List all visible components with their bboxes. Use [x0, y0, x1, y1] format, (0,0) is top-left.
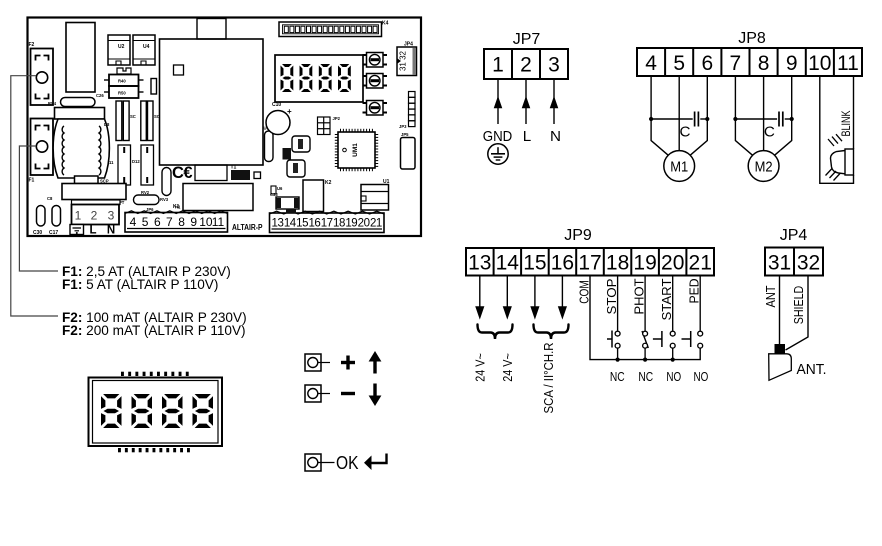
svg-text:F1: 5 AT (ALTAIR P 110V): F1: 5 AT (ALTAIR P 110V) [62, 277, 218, 292]
svg-text:16: 16 [551, 252, 574, 275]
svg-text:17: 17 [578, 252, 601, 275]
svg-text:JP4: JP4 [404, 42, 413, 48]
svg-text:24 V~: 24 V~ [473, 353, 487, 382]
svg-text:11: 11 [212, 215, 225, 229]
svg-text:JP4: JP4 [780, 227, 808, 244]
svg-text:SCA / II°CH.R: SCA / II°CH.R [542, 343, 556, 414]
svg-text:K4: K4 [382, 21, 389, 27]
svg-text:20: 20 [358, 218, 370, 230]
svg-text:C€: C€ [172, 164, 193, 182]
svg-text:T1: T1 [231, 165, 237, 171]
svg-text:15: 15 [523, 252, 546, 275]
svg-text:ANT.: ANT. [797, 361, 827, 378]
svg-text:PED: PED [687, 279, 701, 304]
svg-text:C10: C10 [272, 102, 281, 108]
svg-text:14: 14 [496, 252, 520, 275]
svg-text:11: 11 [837, 52, 859, 75]
svg-text:L: L [89, 225, 96, 237]
svg-text:RV4: RV4 [48, 101, 57, 106]
svg-text:2: 2 [520, 54, 532, 77]
svg-text:SC: SC [154, 114, 160, 119]
svg-text:F2: F2 [29, 42, 35, 48]
svg-text:NO: NO [666, 369, 681, 384]
svg-text:C: C [764, 124, 775, 141]
svg-text:17: 17 [321, 218, 333, 230]
svg-text:R40: R40 [118, 79, 126, 84]
svg-text:JP3: JP3 [399, 124, 407, 129]
svg-text:F1: F1 [29, 178, 35, 184]
svg-text:31: 31 [768, 252, 791, 275]
svg-text:C17: C17 [49, 230, 58, 236]
svg-text:13: 13 [272, 218, 284, 230]
svg-text:C30: C30 [33, 230, 42, 236]
svg-text:21: 21 [370, 218, 382, 230]
svg-text:JP8: JP8 [738, 30, 766, 47]
svg-text:+: + [287, 107, 292, 116]
svg-text:H1: H1 [175, 205, 181, 210]
svg-text:OK: OK [336, 452, 359, 473]
svg-text:2: 2 [91, 209, 98, 223]
svg-text:M2: M2 [755, 159, 773, 176]
svg-text:31 32: 31 32 [399, 50, 408, 71]
svg-text:UM1: UM1 [352, 143, 359, 157]
svg-text:8: 8 [758, 52, 770, 75]
svg-text:STOP: STOP [605, 279, 619, 315]
svg-text:GND: GND [483, 128, 513, 145]
svg-text:9: 9 [190, 215, 197, 229]
svg-text:1: 1 [75, 209, 82, 223]
svg-text:19: 19 [345, 218, 357, 230]
svg-text:BLINK: BLINK [841, 110, 853, 136]
svg-text:ANT: ANT [764, 285, 778, 307]
svg-text:4: 4 [645, 52, 657, 75]
svg-text:NC: NC [610, 369, 625, 384]
svg-text:N: N [107, 225, 115, 237]
svg-text:15: 15 [296, 218, 308, 230]
svg-text:SHIELD: SHIELD [792, 286, 806, 325]
svg-text:JP6: JP6 [146, 207, 154, 212]
svg-text:SC: SC [130, 114, 136, 119]
svg-text:RV3: RV3 [160, 197, 169, 202]
svg-text:D8: D8 [104, 122, 110, 127]
svg-text:20: 20 [661, 252, 684, 275]
svg-text:C8: C8 [47, 196, 53, 201]
svg-text:21: 21 [689, 252, 712, 275]
svg-text:N: N [550, 128, 561, 145]
svg-text:JP2: JP2 [333, 116, 341, 121]
svg-text:C26: C26 [96, 93, 104, 98]
svg-text:7: 7 [730, 52, 742, 75]
svg-text:U1: U1 [383, 179, 390, 185]
svg-text:19: 19 [633, 252, 656, 275]
svg-text:U2: U2 [118, 44, 125, 50]
svg-text:PHOT: PHOT [632, 278, 646, 314]
svg-text:32: 32 [797, 252, 820, 275]
svg-text:16: 16 [308, 218, 320, 230]
svg-text:6: 6 [701, 52, 713, 75]
svg-text:JP7: JP7 [513, 31, 541, 48]
svg-text:13: 13 [468, 252, 491, 275]
svg-text:U4: U4 [143, 44, 150, 50]
svg-text:F2: 200 mAT (ALTAIR P 110V): F2: 200 mAT (ALTAIR P 110V) [62, 323, 246, 338]
svg-text:5: 5 [142, 215, 149, 229]
svg-text:24 V~: 24 V~ [501, 353, 515, 382]
svg-text:3: 3 [108, 209, 115, 223]
svg-text:ALTAIR-P: ALTAIR-P [232, 223, 263, 232]
svg-text:7: 7 [166, 215, 173, 229]
svg-text:M1: M1 [670, 159, 688, 176]
svg-text:K2: K2 [325, 180, 332, 186]
svg-text:L: L [523, 128, 531, 145]
svg-text:18: 18 [333, 218, 345, 230]
svg-text:4: 4 [130, 215, 137, 229]
svg-text:JP5: JP5 [401, 132, 409, 137]
svg-text:10: 10 [808, 52, 831, 75]
svg-text:6: 6 [154, 215, 161, 229]
svg-text:NO: NO [694, 369, 709, 384]
svg-text:COM: COM [577, 280, 591, 304]
svg-text:9: 9 [786, 52, 798, 75]
svg-text:NC: NC [638, 369, 653, 384]
svg-text:JP9: JP9 [564, 227, 592, 244]
svg-text:U6: U6 [277, 186, 283, 191]
svg-text:START: START [660, 278, 674, 320]
svg-text:D12: D12 [132, 159, 140, 164]
svg-text:RV2: RV2 [141, 190, 150, 195]
svg-text:5: 5 [673, 52, 685, 75]
svg-text:R50: R50 [118, 91, 126, 96]
svg-text:1: 1 [492, 54, 504, 77]
svg-text:3: 3 [548, 54, 560, 77]
svg-text:C: C [680, 124, 691, 141]
svg-text:18: 18 [606, 252, 629, 275]
svg-text:14: 14 [284, 218, 297, 230]
svg-text:8: 8 [178, 215, 185, 229]
